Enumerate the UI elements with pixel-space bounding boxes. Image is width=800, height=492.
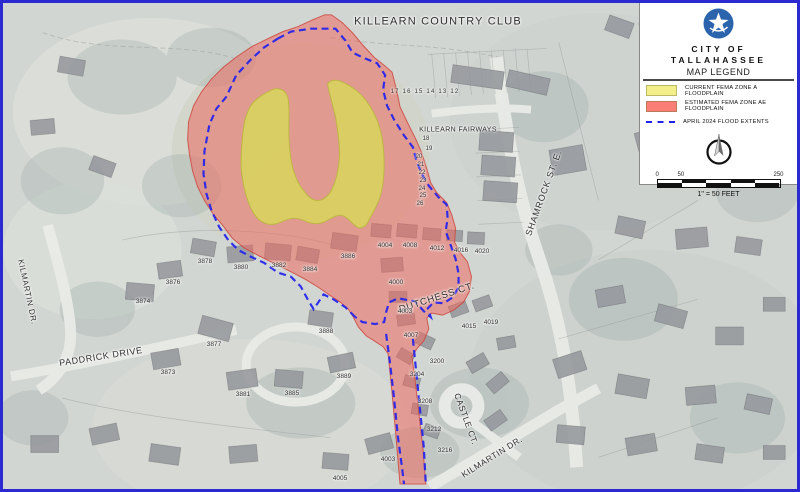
map-frame: KILLEARN COUNTRY CLUBKILLEARN FAIRWAYSSH… xyxy=(0,0,800,492)
legend-title: MAP LEGEND xyxy=(640,67,797,77)
legend-item-label: APRIL 2024 FLOOD EXTENTS xyxy=(683,119,769,125)
scale-bar: 0 50 250 xyxy=(657,172,781,190)
north-arrow-icon xyxy=(640,132,797,171)
org-name-line1: CITY OF xyxy=(640,44,797,55)
legend-item-label: ESTIMATED FEMA ZONE AE FLOODPLAIN xyxy=(685,100,797,112)
flood-extents-dash-swatch xyxy=(646,121,675,123)
map-legend: CITY OF TALLAHASSEE MAP LEGEND CURRENT F… xyxy=(639,3,797,185)
scale-caption: 1" = 50 FEET xyxy=(640,191,797,198)
zone-ae-swatch xyxy=(646,101,677,112)
legend-item-zone-ae: ESTIMATED FEMA ZONE AE FLOODPLAIN xyxy=(646,101,797,112)
scale-bar-graphic xyxy=(657,179,781,188)
legend-item-zone-a: CURRENT FEMA ZONE A FLOODPLAIN xyxy=(646,85,797,96)
scale-tick: 250 xyxy=(773,172,783,178)
legend-item-label: CURRENT FEMA ZONE A FLOODPLAIN xyxy=(685,85,797,97)
org-name-line2: TALLAHASSEE xyxy=(640,55,797,66)
legend-divider xyxy=(643,79,794,81)
scale-tick: 0 xyxy=(656,172,659,178)
legend-item-flood-extents: APRIL 2024 FLOOD EXTENTS xyxy=(646,116,797,127)
tallahassee-logo xyxy=(640,8,797,44)
zone-a-swatch xyxy=(646,85,677,96)
scale-ticks: 0 50 250 xyxy=(657,172,781,179)
scale-tick: 50 xyxy=(678,172,685,178)
